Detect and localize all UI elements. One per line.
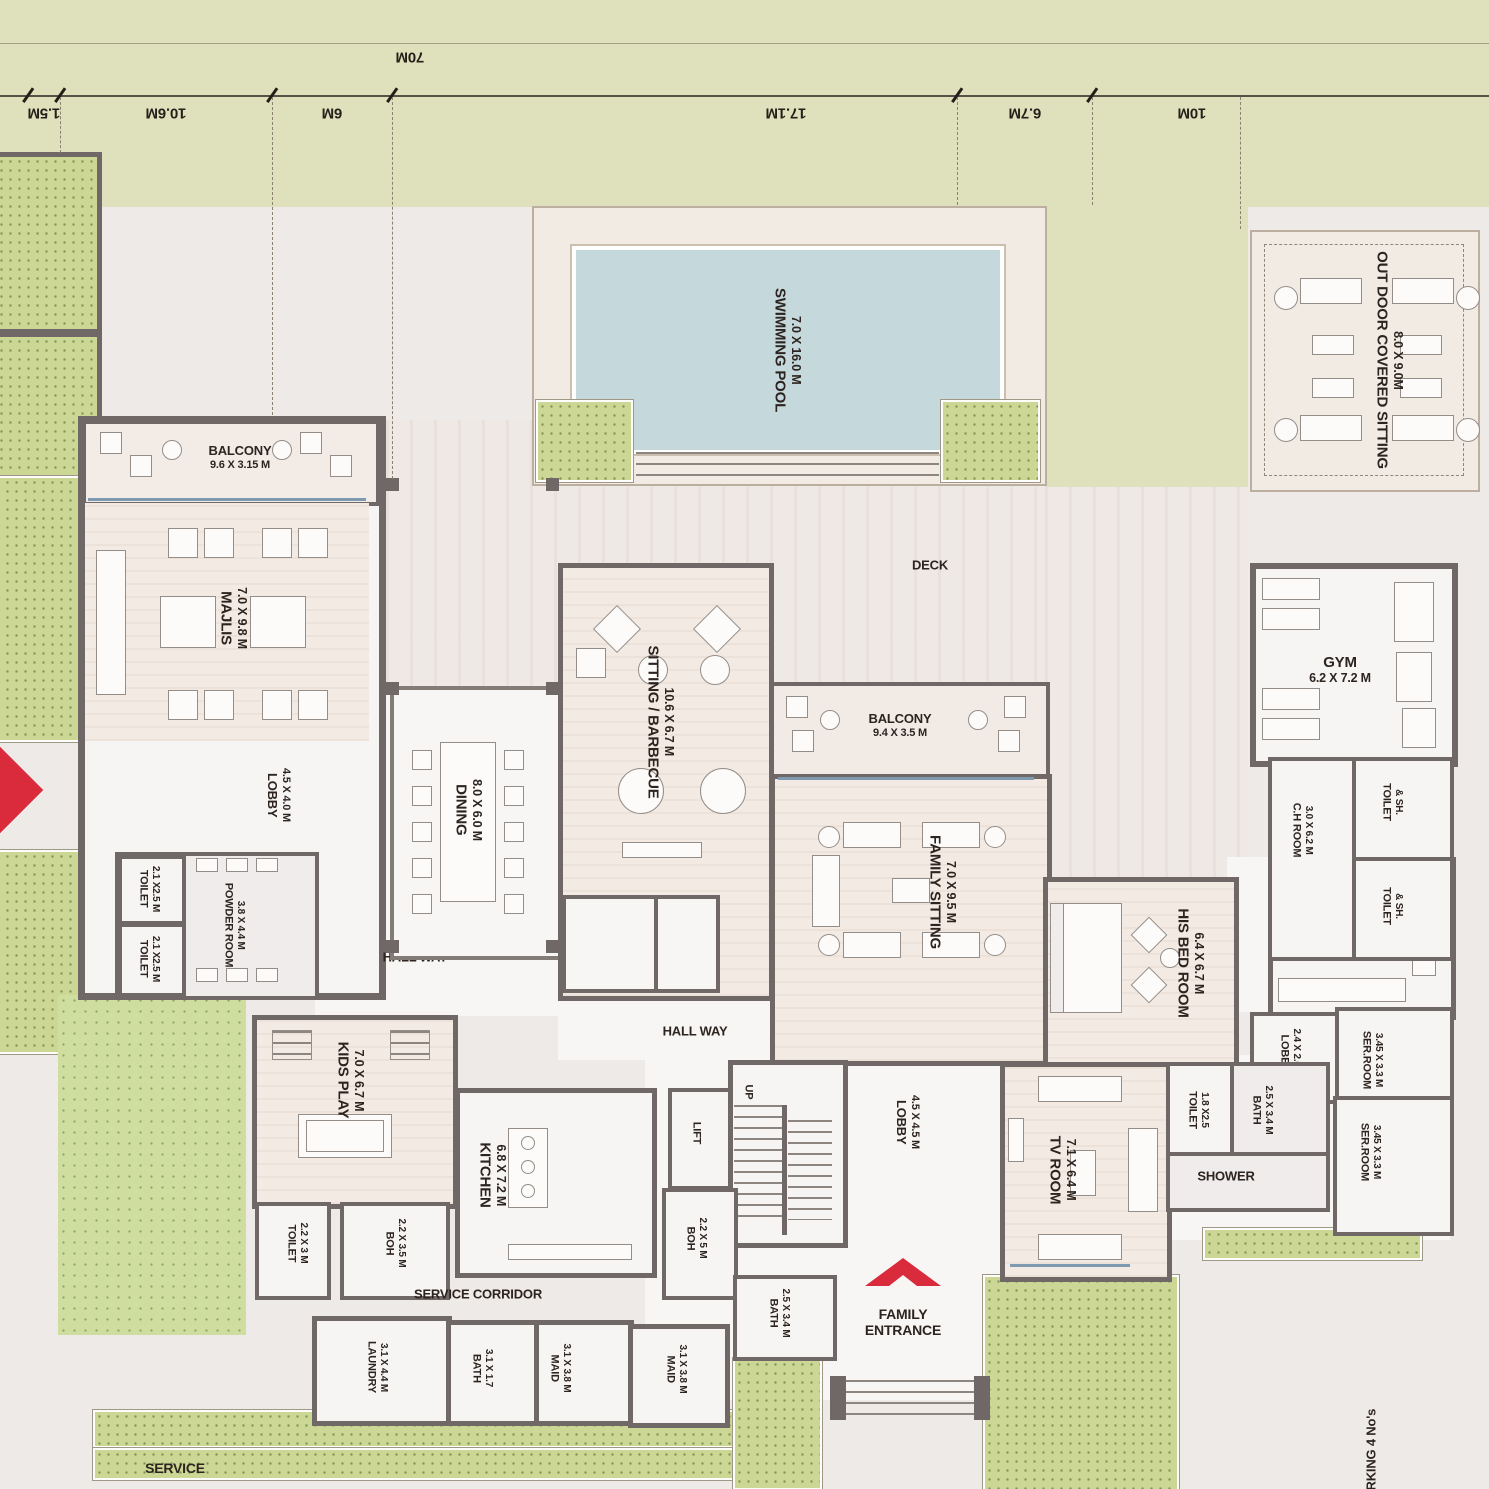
side-table-icon bbox=[984, 826, 1006, 848]
room-label-toilet-sh-1: TOILET & SH. bbox=[1380, 783, 1404, 821]
dim-extension-line bbox=[392, 97, 393, 479]
dining-chair-icon bbox=[412, 750, 432, 770]
dimension-base-line bbox=[0, 95, 1489, 97]
treadmill-icon bbox=[1262, 608, 1320, 630]
room-label-bath-service: BATH 3.1 X 1.7 bbox=[470, 1349, 494, 1387]
majlis-chair-icon bbox=[168, 690, 198, 720]
balcony-chair-icon bbox=[792, 730, 814, 752]
stair-flight-icon bbox=[788, 1120, 832, 1220]
planter-entrance-east bbox=[985, 1277, 1177, 1489]
balcony-chair-icon bbox=[130, 455, 152, 477]
side-table-icon bbox=[984, 934, 1006, 956]
sofa-icon bbox=[1300, 278, 1362, 304]
label-service-corridor: SERVICE CORRIDOR bbox=[414, 1288, 542, 1303]
pool-steps bbox=[636, 452, 939, 478]
wash-room-2 bbox=[654, 895, 720, 993]
side-table-icon bbox=[818, 826, 840, 848]
majlis-chair-icon bbox=[262, 528, 292, 558]
sofa-icon bbox=[1038, 1234, 1122, 1260]
dim-seg-1: 10.6M bbox=[146, 105, 187, 122]
majlis-chair-icon bbox=[204, 690, 234, 720]
side-table-icon bbox=[1456, 418, 1480, 442]
room-label-family-sitting: FAMILY SITTING 7.0 X 9.5 M bbox=[926, 835, 958, 949]
room-label-balcony-majlis: BALCONY 9.6 X 3.15 M bbox=[209, 444, 272, 472]
dining-chair-icon bbox=[504, 786, 524, 806]
sink-icon bbox=[256, 968, 278, 982]
entrance-step-pier bbox=[974, 1376, 990, 1420]
sink-icon bbox=[196, 968, 218, 982]
column bbox=[546, 478, 559, 491]
treadmill-icon bbox=[1262, 578, 1320, 600]
armchair-icon bbox=[576, 648, 606, 678]
label-family-entrance: FAMILY ENTRANCE bbox=[865, 1306, 941, 1338]
room-label-sitting-barbecue: SITTING / BARBECUE 10.6 X 6.7 M bbox=[644, 645, 676, 798]
balcony-chair-icon bbox=[1004, 696, 1026, 718]
wardrobe-icon bbox=[1278, 978, 1406, 1002]
dim-extension-line bbox=[272, 97, 273, 415]
entrance-steps bbox=[845, 1380, 975, 1416]
play-equipment-icon bbox=[390, 1030, 430, 1060]
room-label-swimming-pool: SWIMMING POOL 7.0 X 16.0 M bbox=[771, 288, 803, 412]
dim-extension-line bbox=[1240, 97, 1241, 229]
room-label-kids-play: KIDS PLAY 7.0 X 6.7 M bbox=[334, 1042, 366, 1119]
dining-chair-icon bbox=[412, 786, 432, 806]
landscape-top-band bbox=[0, 0, 1489, 207]
label-service: SERVICE bbox=[145, 1460, 205, 1476]
coffee-table-icon bbox=[1400, 378, 1442, 398]
main-entrance-marker-icon bbox=[0, 745, 43, 836]
room-label-toilet-sh-2: TOILET & SH. bbox=[1380, 887, 1404, 925]
dim-extension-line bbox=[60, 97, 61, 153]
room-label-laundry: LAUNDRY 3.1 X 4.4 M bbox=[365, 1341, 389, 1393]
sofa-icon bbox=[843, 932, 901, 958]
majlis-sofa-icon bbox=[96, 550, 126, 695]
room-label-toilet-kids: TOILET 2.2 X 3 M bbox=[285, 1223, 309, 1264]
coffee-table-icon bbox=[892, 878, 930, 903]
kitchen-counter-icon bbox=[508, 1244, 632, 1260]
sofa-icon bbox=[1128, 1128, 1158, 1212]
floor-plan: SWIMMING POOL 7.0 X 16.0 M OUT DOOR COVE… bbox=[0, 0, 1489, 1489]
room-label-balcony-family: BALCONY 9.4 X 3.5 M bbox=[869, 712, 932, 740]
majlis-chair-icon bbox=[298, 528, 328, 558]
dim-seg-4: 6.7M bbox=[1009, 105, 1042, 122]
burner-icon bbox=[521, 1184, 535, 1198]
label-stairs-up: UP bbox=[742, 1085, 755, 1100]
balcony-chair-icon bbox=[100, 432, 122, 454]
side-table-icon bbox=[818, 934, 840, 956]
sofa-icon bbox=[812, 855, 840, 927]
room-label-maid-1: MAID 3.1 X 3.8 M bbox=[548, 1344, 572, 1393]
burner-icon bbox=[521, 1160, 535, 1174]
planter-bath-south bbox=[735, 1360, 820, 1488]
planter-west-majlis bbox=[0, 478, 78, 740]
room-label-toilet-tv: TOILET 1.8 X2.5 bbox=[1186, 1091, 1210, 1129]
play-equipment-icon bbox=[272, 1030, 312, 1060]
sink-icon bbox=[226, 858, 248, 872]
gym-rack-icon bbox=[1402, 708, 1436, 748]
sofa-icon bbox=[1038, 1076, 1122, 1102]
room-label-ser-room-1: SER.ROOM 3.45 X 3.3 M bbox=[1360, 1031, 1384, 1089]
dining-chair-icon bbox=[412, 822, 432, 842]
sink-icon bbox=[256, 858, 278, 872]
pool-planter-left bbox=[538, 402, 631, 480]
label-hall-way-2: HALL WAY bbox=[663, 1025, 728, 1040]
stair-flight-icon bbox=[734, 1105, 782, 1217]
tv-console-icon bbox=[1008, 1118, 1024, 1162]
dim-seg-5: 10M bbox=[1178, 105, 1207, 122]
majlis-chair-icon bbox=[262, 690, 292, 720]
treadmill-icon bbox=[1262, 718, 1320, 740]
pool-planter-right bbox=[943, 402, 1038, 480]
dining-round-table-icon bbox=[700, 768, 746, 814]
gym-machine-icon bbox=[1394, 582, 1434, 642]
label-deck: DECK bbox=[912, 559, 948, 574]
column bbox=[386, 940, 399, 953]
planter-northwest-1 bbox=[0, 152, 102, 334]
majlis-chair-icon bbox=[168, 528, 198, 558]
room-label-tv-room: TV ROOM 7.1 X 6.4 M bbox=[1046, 1136, 1078, 1205]
dining-chair-icon bbox=[504, 750, 524, 770]
window-line bbox=[88, 498, 366, 501]
sofa-icon bbox=[843, 822, 901, 848]
sink-icon bbox=[226, 968, 248, 982]
room-label-bath-tv: BATH 2.5 X 3.4 M bbox=[1250, 1086, 1274, 1135]
room-label-kitchen: KITCHEN 6.8 X 7.2 M bbox=[476, 1142, 508, 1207]
balcony-chair-icon bbox=[786, 696, 808, 718]
balcony-table-icon bbox=[820, 710, 840, 730]
room-label-toilet-1: TOILET 2.1 X2.5 M bbox=[137, 866, 161, 912]
window-line bbox=[1010, 1264, 1130, 1267]
coffee-table-icon bbox=[1400, 335, 1442, 355]
room-label-gym: GYM 6.2 X 7.2 M bbox=[1309, 654, 1371, 686]
dining-chair-icon bbox=[412, 894, 432, 914]
sink-icon bbox=[196, 858, 218, 872]
room-label-dining: DINING 8.0 X 6.0 M bbox=[452, 779, 484, 841]
dim-total: 70M bbox=[396, 49, 425, 66]
side-table-icon bbox=[1456, 286, 1480, 310]
stair-divider bbox=[782, 1105, 787, 1235]
entrance-arrow-notch-icon bbox=[889, 1275, 917, 1286]
ch-room bbox=[1268, 757, 1356, 961]
window-line bbox=[778, 777, 1034, 780]
dining-chair-icon bbox=[504, 822, 524, 842]
majlis-table-icon bbox=[160, 596, 216, 648]
dining-chair-icon bbox=[412, 858, 432, 878]
coffee-table-icon bbox=[1312, 378, 1354, 398]
dim-seg-0: 1.5M bbox=[28, 105, 61, 122]
wash-room-1 bbox=[562, 895, 658, 993]
dim-seg-2: 6M bbox=[322, 105, 342, 122]
deck-area-east bbox=[1045, 487, 1248, 879]
label-parking: PARKING 4 No's bbox=[1365, 1409, 1380, 1489]
room-label-toilet-2: TOILET 2.1 X2.5 M bbox=[137, 936, 161, 982]
pool-table-inner-icon bbox=[306, 1120, 384, 1152]
sofa-icon bbox=[1300, 415, 1362, 441]
room-label-bath-stairs: BATH 2.5 X 3.4 M bbox=[767, 1289, 791, 1338]
gym-machine-icon bbox=[1396, 652, 1432, 702]
room-label-lift: LIFT bbox=[690, 1122, 703, 1144]
majlis-chair-icon bbox=[204, 528, 234, 558]
majlis-chair-icon bbox=[298, 690, 328, 720]
round-table-icon bbox=[700, 655, 730, 685]
room-label-lobby-family: LOBBY 4.5 X 4.5 M bbox=[893, 1095, 921, 1149]
room-label-ch-room: C.H ROOM 3.0 X 6.2 M bbox=[1290, 803, 1314, 858]
balcony-chair-icon bbox=[998, 730, 1020, 752]
room-label-outdoor-sitting: OUT DOOR COVERED SITTING 8.0 X 9.0M bbox=[1373, 251, 1405, 469]
coffee-table-icon bbox=[1312, 335, 1354, 355]
room-label-boh-2: BOH 2.2 X 5 M bbox=[684, 1218, 708, 1259]
burner-icon bbox=[521, 1136, 535, 1150]
balcony-table-icon bbox=[968, 710, 988, 730]
lawn-west bbox=[58, 995, 246, 1335]
bath-tv bbox=[1230, 1062, 1330, 1160]
side-table-icon bbox=[1274, 418, 1298, 442]
room-label-ser-room-2: SER.ROOM 3.45 X 3.3 M bbox=[1358, 1123, 1382, 1181]
room-label-powder-room: POWDER ROOM 3.8 X 4.4 M bbox=[222, 883, 246, 968]
room-label-his-bed-room: HIS BED ROOM 6.4 X 6.7 M bbox=[1174, 908, 1206, 1017]
landscape-column bbox=[1043, 207, 1248, 487]
balcony-chair-icon bbox=[330, 455, 352, 477]
dim-seg-3: 17.1M bbox=[766, 105, 807, 122]
column bbox=[386, 478, 399, 491]
room-label-shower: SHOWER bbox=[1197, 1170, 1254, 1185]
balcony-chair-icon bbox=[300, 432, 322, 454]
column bbox=[386, 682, 399, 695]
room-label-maid-2: MAID 3.1 X 3.8 M bbox=[664, 1345, 688, 1394]
dining-chair-icon bbox=[504, 858, 524, 878]
dim-extension-line bbox=[957, 97, 958, 205]
majlis-table-icon bbox=[250, 596, 306, 648]
entrance-step-pier bbox=[830, 1376, 846, 1420]
bed-pillow-icon bbox=[1050, 903, 1064, 1013]
balcony-table-icon bbox=[162, 440, 182, 460]
treadmill-icon bbox=[1262, 688, 1320, 710]
dining-chair-icon bbox=[504, 894, 524, 914]
side-table-icon bbox=[1274, 286, 1298, 310]
balcony-table-icon bbox=[272, 440, 292, 460]
room-label-lobby-main: LOBBY 4.5 X 4.0 M bbox=[264, 768, 292, 822]
room-label-boh-1: BOH 2.2 X 3.5 M bbox=[383, 1219, 407, 1268]
room-label-majlis: MAJLIS 7.0 X 9.8 M bbox=[217, 587, 249, 649]
site-boundary-line bbox=[0, 43, 1489, 44]
dim-extension-line bbox=[1092, 97, 1093, 205]
ser-room-2 bbox=[1333, 1096, 1454, 1236]
console-icon bbox=[622, 842, 702, 858]
